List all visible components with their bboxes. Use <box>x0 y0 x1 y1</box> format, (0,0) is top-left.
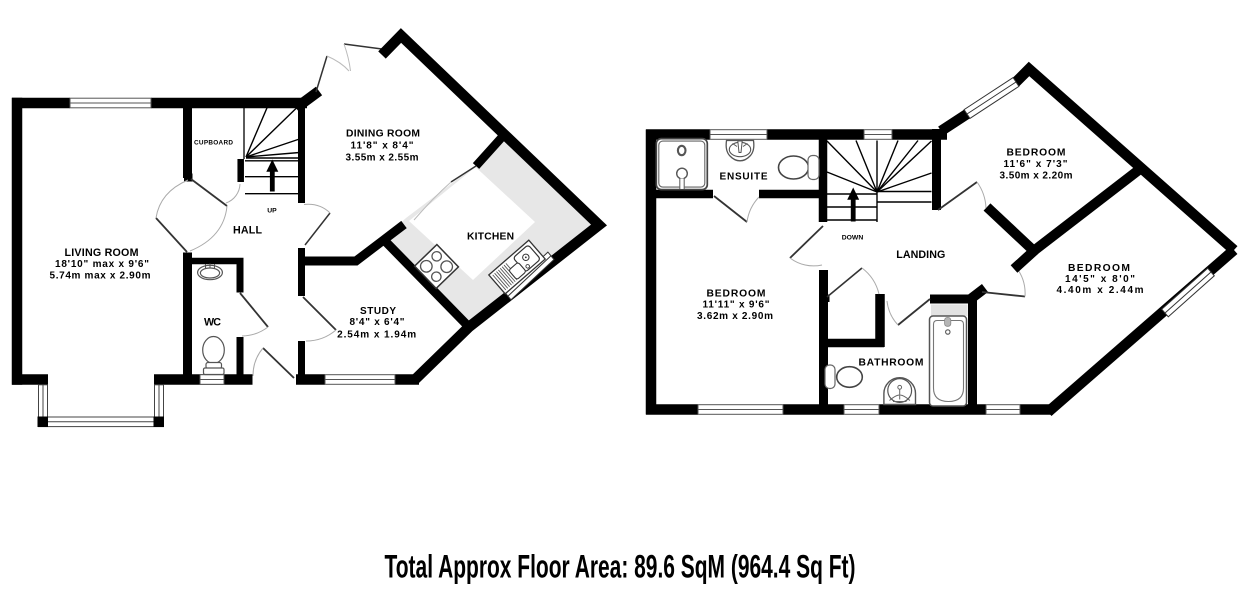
svg-text:5.74m max x 2.90m: 5.74m max x 2.90m <box>50 270 151 281</box>
svg-text:11'6" x 7'3": 11'6" x 7'3" <box>1004 159 1068 170</box>
svg-text:4.40m x 2.44m: 4.40m x 2.44m <box>1057 285 1144 296</box>
svg-text:UP: UP <box>267 208 277 215</box>
svg-text:WC: WC <box>204 317 221 329</box>
svg-text:11'8" x 8'4": 11'8" x 8'4" <box>351 141 414 152</box>
svg-text:LIVING ROOM: LIVING ROOM <box>65 247 139 259</box>
svg-text:LANDING: LANDING <box>896 249 945 261</box>
svg-text:DINING ROOM: DINING ROOM <box>346 129 420 140</box>
svg-text:STUDY: STUDY <box>360 306 396 317</box>
svg-text:Total Approx Floor Area: 89.6: Total Approx Floor Area: 89.6 SqM (964.4… <box>385 549 856 585</box>
svg-text:3.55m x 2.55m: 3.55m x 2.55m <box>346 153 419 164</box>
svg-text:BEDROOM: BEDROOM <box>1068 263 1130 274</box>
svg-text:BEDROOM: BEDROOM <box>707 289 766 300</box>
svg-text:HALL: HALL <box>233 225 262 237</box>
svg-text:ENSUITE: ENSUITE <box>720 171 768 182</box>
svg-text:3.62m x 2.90m: 3.62m x 2.90m <box>697 311 773 322</box>
svg-text:DOWN: DOWN <box>842 235 864 242</box>
svg-text:11'11" x 9'6": 11'11" x 9'6" <box>703 300 770 311</box>
svg-text:8'4" x 6'4": 8'4" x 6'4" <box>350 317 405 328</box>
svg-text:2.54m x 1.94m: 2.54m x 1.94m <box>337 329 416 340</box>
svg-text:3.50m x 2.20m: 3.50m x 2.20m <box>1000 171 1073 182</box>
svg-text:CUPBOARD: CUPBOARD <box>194 140 233 147</box>
svg-text:18'10" max x 9'6": 18'10" max x 9'6" <box>55 259 149 270</box>
svg-text:BATHROOM: BATHROOM <box>859 357 924 368</box>
svg-text:BEDROOM: BEDROOM <box>1007 148 1066 159</box>
svg-text:KITCHEN: KITCHEN <box>467 232 514 243</box>
svg-text:14'5" x 8'0": 14'5" x 8'0" <box>1065 274 1135 285</box>
